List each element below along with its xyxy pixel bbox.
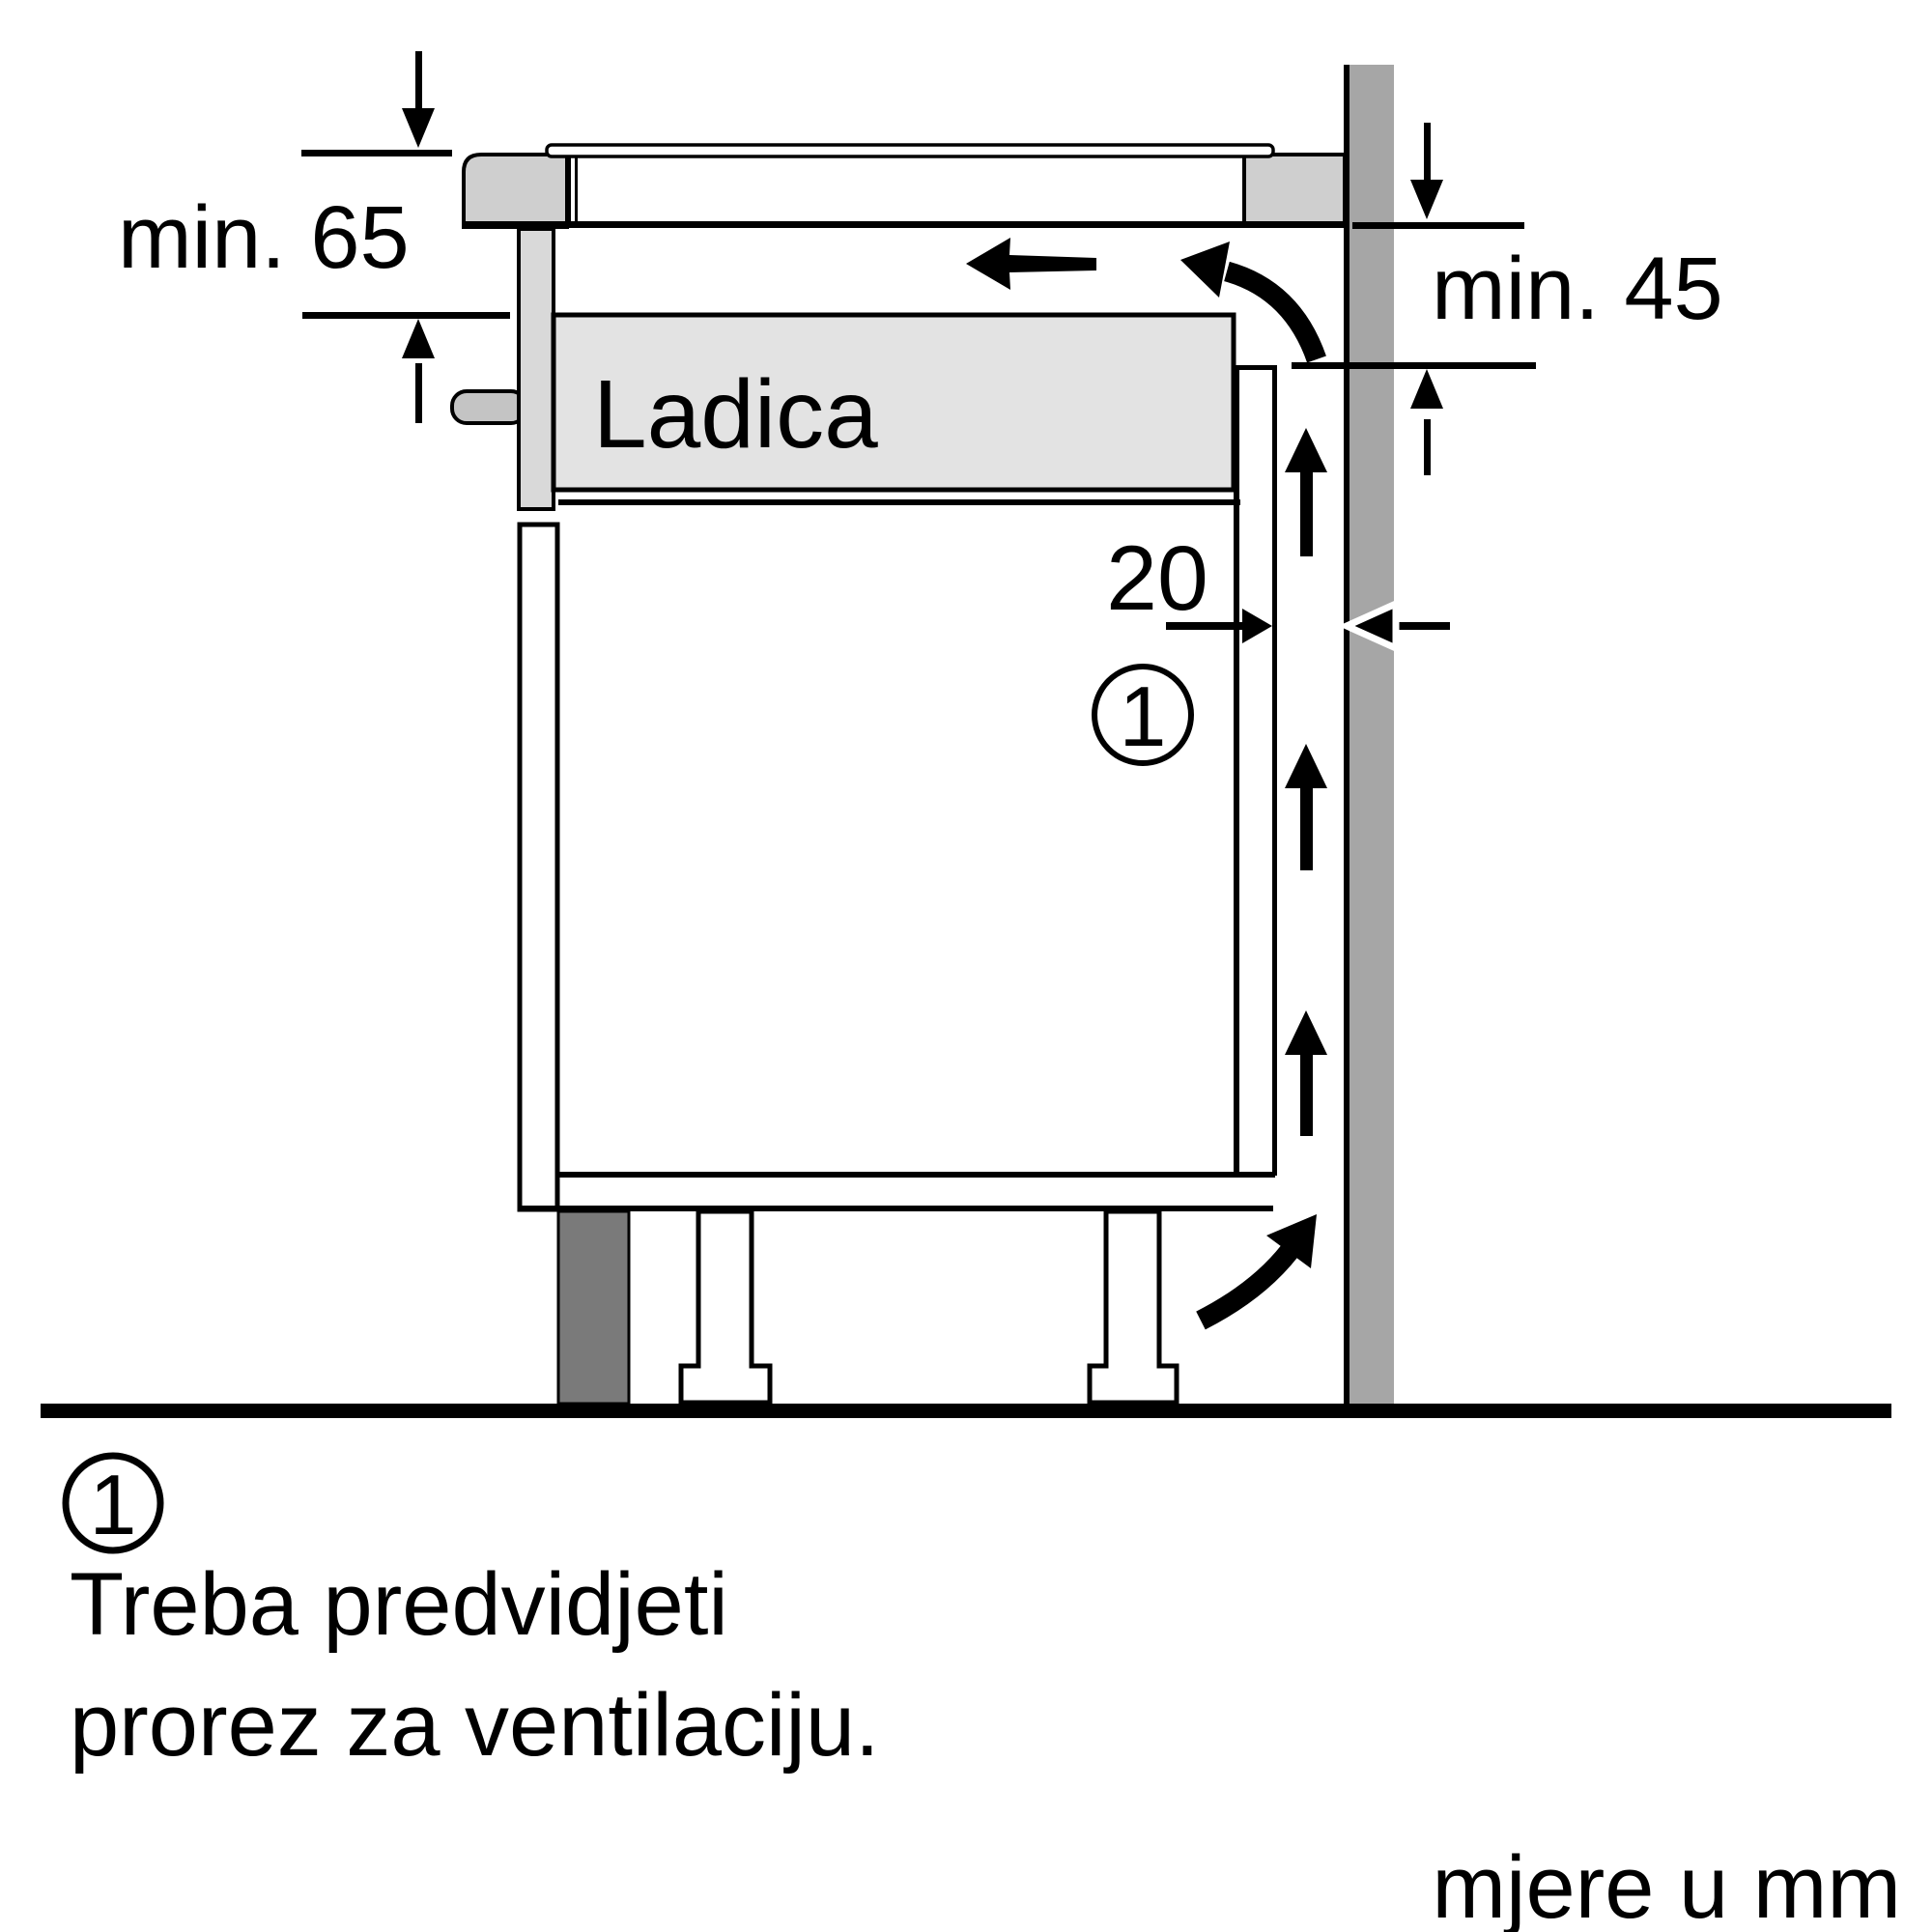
airflow-curve-bottom — [1201, 1251, 1290, 1321]
hob-body-front-block — [464, 155, 567, 227]
wall-edge-line — [1344, 65, 1350, 1404]
cutout-joint-line-1 — [568, 157, 571, 221]
dim65-arrow-up-icon — [402, 319, 435, 358]
dim45-arrow-up-shaft — [1424, 419, 1431, 475]
airflow-curve-top-arrowhead-icon — [1180, 241, 1230, 298]
cabinet-leg-back — [1090, 1211, 1177, 1403]
dim65-tick-top — [301, 150, 452, 156]
worktop-bottom-line — [462, 221, 1347, 228]
counter-end-block — [1244, 155, 1345, 223]
dimension-gap-20: 20 — [1106, 527, 1450, 648]
dim65-arrow-down-shaft — [415, 51, 422, 111]
dim45-tick-top — [1352, 222, 1524, 229]
airflow-up-arrow-1-icon — [1285, 428, 1327, 472]
fixing-screw — [452, 391, 526, 423]
callout-number: 1 — [1120, 668, 1167, 764]
ventilation-back-panel-line — [1272, 365, 1277, 1176]
cabinet-back-wall-line — [1234, 365, 1239, 1176]
drawer-label: Ladica — [593, 360, 878, 469]
dim45-tick-bottom — [1292, 362, 1536, 369]
dim20-arrow-left-shaft — [1394, 622, 1450, 630]
dim20-label: 20 — [1106, 527, 1208, 630]
dim45-arrow-down-icon — [1410, 180, 1443, 219]
units-note: mjere u mm — [1432, 1838, 1901, 1932]
worktop — [462, 145, 1347, 228]
wall-surface — [1350, 65, 1394, 1404]
floor-line — [41, 1404, 1891, 1418]
airflow-up-arrow-2-shaft — [1300, 788, 1313, 870]
dim65-arrow-down-icon — [402, 108, 435, 148]
airflow-up-arrow-1-shaft — [1300, 472, 1313, 556]
callout-1-marker: 1 — [1094, 667, 1191, 764]
back-channel-top-line — [1234, 365, 1277, 370]
installation-diagram: Ladica min. 65 min. 45 20 — [0, 0, 1932, 1932]
cabinet-carcass — [520, 365, 1277, 1404]
cabinet-door-panel — [520, 525, 557, 1209]
cabinet-leg-front — [681, 1211, 770, 1403]
footnote-line-2: prorez za ventilaciju. — [70, 1676, 880, 1775]
dim20-arrow-right-shaft — [1166, 622, 1245, 630]
dim20-arrow-right-icon — [1242, 609, 1272, 643]
drawer: Ladica — [554, 315, 1240, 505]
dimension-min-65: min. 65 — [118, 51, 510, 423]
drawer-shelf-line — [558, 499, 1240, 505]
cutout-joint-line-2 — [575, 157, 578, 221]
dim65-arrow-up-shaft — [415, 363, 422, 423]
worktop-slab — [464, 153, 1345, 227]
drawer-front-panel — [519, 229, 554, 509]
wall — [1344, 65, 1394, 1404]
dim45-label: min. 45 — [1432, 240, 1723, 338]
airflow-out-left-arrow-icon — [966, 238, 1096, 290]
airflow-up-arrow-3-icon — [1285, 1010, 1327, 1055]
footnote-line-1: Treba predvidjeti — [70, 1555, 728, 1654]
airflow-up-arrow-2-icon — [1285, 744, 1327, 788]
airflow-up-arrow-3-shaft — [1300, 1055, 1313, 1136]
footnote: 1 Treba predvidjeti prorez za ventilacij… — [66, 1456, 880, 1775]
dim45-arrow-up-icon — [1410, 369, 1443, 409]
dim65-label: min. 65 — [118, 188, 410, 287]
dim45-arrow-down-shaft — [1424, 123, 1431, 183]
cabinet-bottom-top-line — [558, 1172, 1275, 1178]
hob-glass — [547, 145, 1273, 156]
diagram-canvas: Ladica min. 65 min. 45 20 — [0, 0, 1932, 1932]
dim65-tick-bottom — [302, 312, 510, 319]
airflow-curve-top — [1227, 271, 1317, 359]
footnote-number: 1 — [90, 1457, 137, 1552]
plinth-block — [558, 1211, 629, 1404]
